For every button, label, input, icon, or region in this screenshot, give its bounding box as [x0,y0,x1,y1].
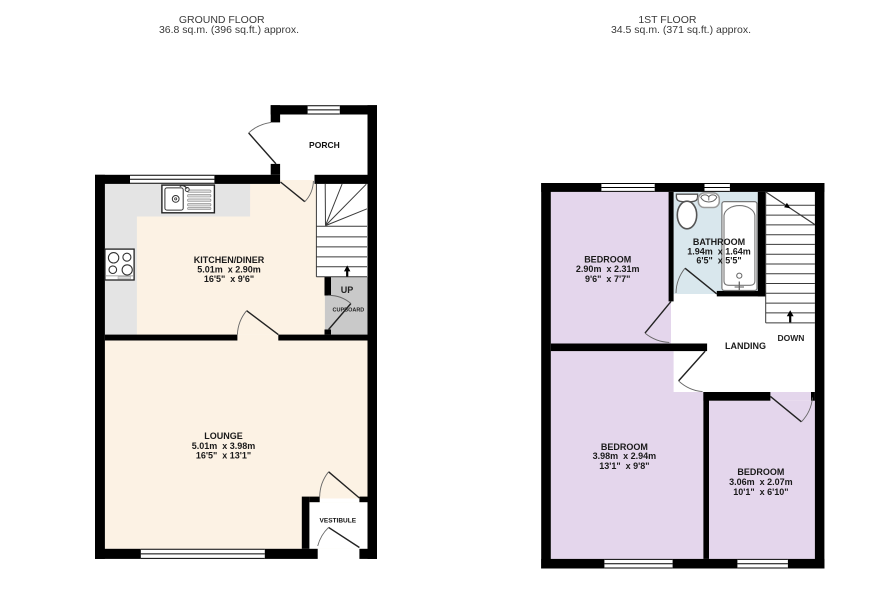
svg-text:34.5 sq.m. (371 sq.ft.) approx: 34.5 sq.m. (371 sq.ft.) approx. [611,24,751,36]
svg-text:KITCHEN/DINER: KITCHEN/DINER [194,255,265,265]
svg-text:DOWN: DOWN [777,333,804,343]
svg-text:10'1" x 6'10": 10'1" x 6'10" [733,487,788,497]
svg-text:LOUNGE: LOUNGE [204,431,243,441]
svg-text:3.06m x 2.07m: 3.06m x 2.07m [729,477,793,487]
svg-text:BATHROOM: BATHROOM [693,237,745,247]
svg-text:6'5" x 5'5": 6'5" x 5'5" [696,256,741,266]
svg-text:13'1" x 9'8": 13'1" x 9'8" [599,461,649,471]
svg-text:3.98m x 2.94m: 3.98m x 2.94m [593,451,657,461]
svg-text:36.8 sq.m. (396 sq.ft.) approx: 36.8 sq.m. (396 sq.ft.) approx. [159,24,299,36]
svg-text:UP: UP [341,285,354,295]
svg-text:BEDROOM: BEDROOM [737,467,784,477]
svg-text:LANDING: LANDING [725,341,766,351]
svg-text:CUPBOARD: CUPBOARD [333,307,365,313]
svg-text:16'5" x 13'1": 16'5" x 13'1" [196,451,251,461]
svg-text:VESTIBULE: VESTIBULE [320,517,357,524]
svg-text:5.01m x 3.98m: 5.01m x 3.98m [192,441,256,451]
svg-text:BEDROOM: BEDROOM [584,255,631,265]
svg-text:PORCH: PORCH [309,140,340,150]
svg-text:9'6" x 7'7": 9'6" x 7'7" [585,274,630,284]
svg-text:16'5" x 9'6": 16'5" x 9'6" [204,274,254,284]
svg-text:2.90m x 2.31m: 2.90m x 2.31m [576,264,640,274]
